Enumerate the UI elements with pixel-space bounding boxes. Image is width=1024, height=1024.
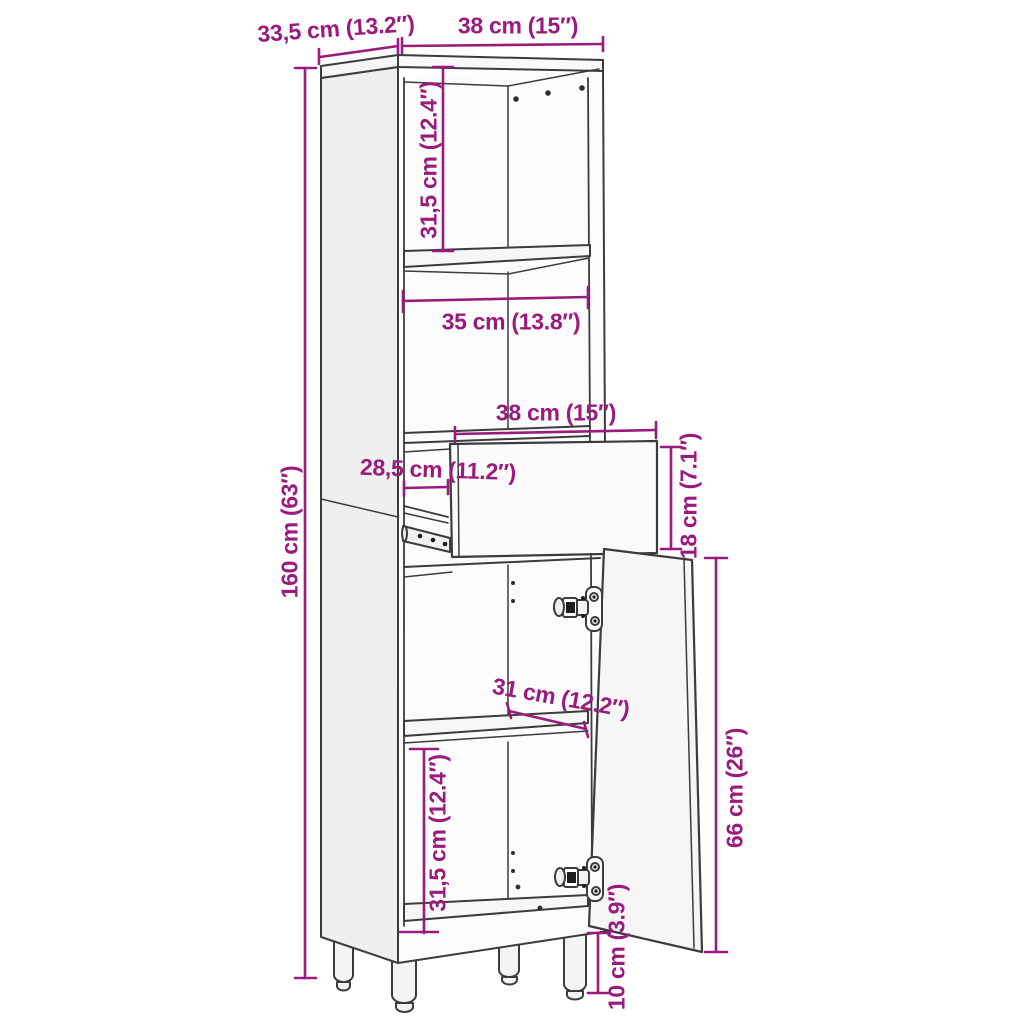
cabinet-line-art [0, 0, 1024, 1024]
dim-label-door-height: 66 cm (26″) [722, 728, 749, 848]
dim-label-middle-compartment-width: 35 cm (13.8″) [442, 309, 581, 336]
dim-label-lower-compartment-height: 31,5 cm (12.4″) [425, 754, 452, 911]
dim-label-overall-height: 160 cm (63″) [277, 466, 304, 599]
diagram-canvas: 33,5 cm (13.2″) 38 cm (15″) 31,5 cm (12.… [0, 0, 1024, 1024]
dim-label-top-width: 38 cm (15″) [458, 13, 578, 40]
dim-label-drawer-width: 38 cm (15″) [496, 400, 616, 427]
dim-label-drawer-inner-depth: 28,5 cm (11.2″) [360, 454, 517, 486]
dim-label-upper-compartment-height: 31,5 cm (12.4″) [416, 81, 443, 238]
dim-label-leg-height: 10 cm (3.9″) [604, 884, 631, 1010]
dim-label-drawer-height: 18 cm (7.1″) [676, 433, 703, 559]
